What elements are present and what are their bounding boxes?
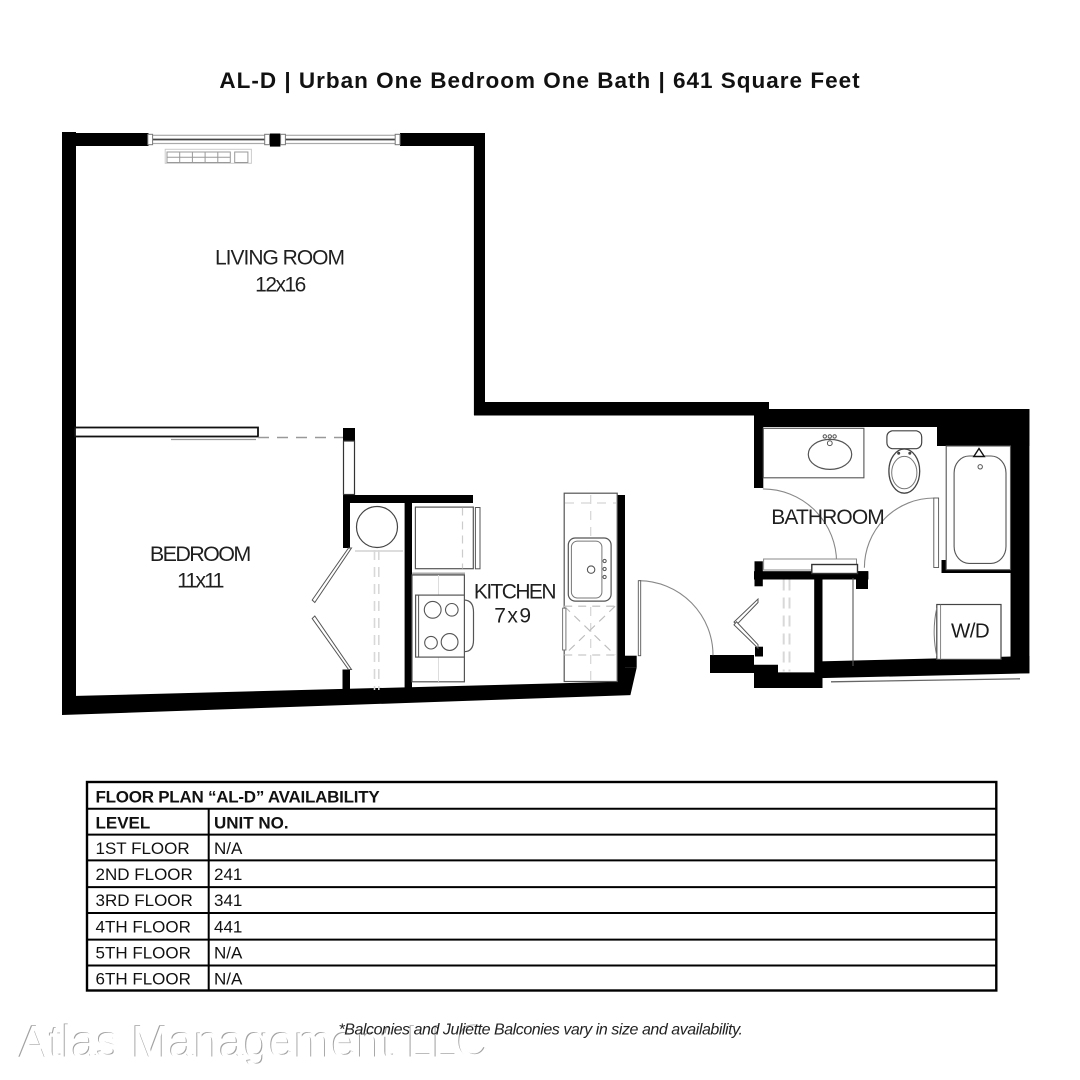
svg-text:341: 341 (214, 891, 242, 910)
svg-text:KITCHEN: KITCHEN (474, 581, 555, 604)
svg-text:BATHROOM: BATHROOM (771, 506, 884, 529)
svg-text:LEVEL: LEVEL (96, 814, 151, 833)
svg-text:241: 241 (214, 865, 242, 884)
svg-text:*Balconies and Juliette Balcon: *Balconies and Juliette Balconies vary i… (338, 1021, 742, 1038)
svg-text:4TH FLOOR: 4TH FLOOR (96, 918, 191, 937)
svg-text:12x16: 12x16 (255, 274, 306, 297)
svg-text:N/A: N/A (214, 969, 243, 988)
svg-text:N/A: N/A (214, 839, 243, 858)
svg-text:1ST FLOOR: 1ST FLOOR (96, 839, 190, 858)
svg-text:2ND FLOOR: 2ND FLOOR (96, 865, 193, 884)
svg-text:7x9: 7x9 (494, 605, 532, 628)
svg-text:UNIT NO.: UNIT NO. (214, 814, 289, 833)
svg-text:11x11: 11x11 (177, 569, 223, 593)
svg-text:3RD FLOOR: 3RD FLOOR (96, 891, 193, 910)
svg-text:N/A: N/A (214, 944, 243, 963)
svg-text:441: 441 (214, 918, 242, 937)
svg-text:6TH FLOOR: 6TH FLOOR (96, 969, 191, 988)
svg-text:FLOOR PLAN “AL-D” AVAILABILITY: FLOOR PLAN “AL-D” AVAILABILITY (96, 788, 381, 807)
svg-text:W/D: W/D (951, 620, 989, 643)
svg-text:LIVING ROOM: LIVING ROOM (215, 247, 344, 270)
svg-text:AL-D | Urban One Bedroom One B: AL-D | Urban One Bedroom One Bath | 641 … (219, 68, 860, 93)
svg-text:BEDROOM: BEDROOM (150, 542, 251, 566)
svg-text:5TH FLOOR: 5TH FLOOR (96, 944, 191, 963)
